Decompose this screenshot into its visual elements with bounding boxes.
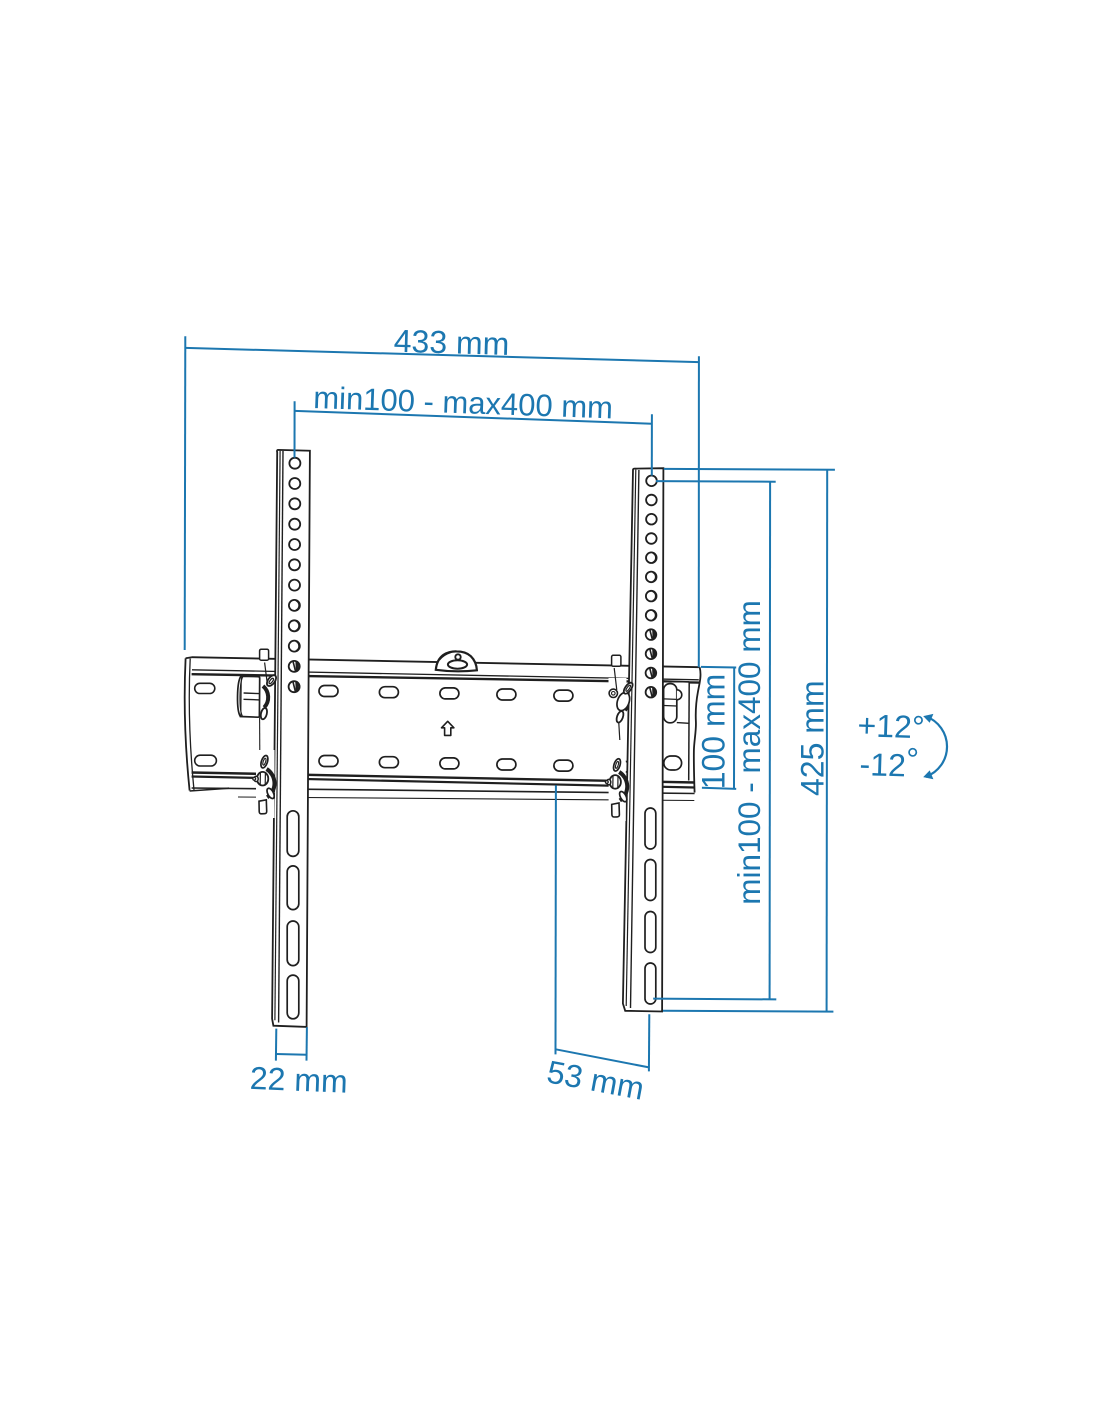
svg-text:-12°: -12°	[859, 740, 919, 784]
svg-text:53 mm: 53 mm	[544, 1053, 647, 1106]
svg-text:min100 - max400 mm: min100 - max400 mm	[731, 600, 767, 905]
svg-text:+12°: +12°	[857, 707, 925, 745]
svg-text:433 mm: 433 mm	[393, 323, 510, 362]
svg-text:min100 - max400 mm: min100 - max400 mm	[313, 380, 614, 425]
svg-text:425 mm: 425 mm	[794, 680, 830, 796]
svg-text:100 mm: 100 mm	[696, 674, 732, 790]
svg-text:22 mm: 22 mm	[249, 1060, 348, 1100]
